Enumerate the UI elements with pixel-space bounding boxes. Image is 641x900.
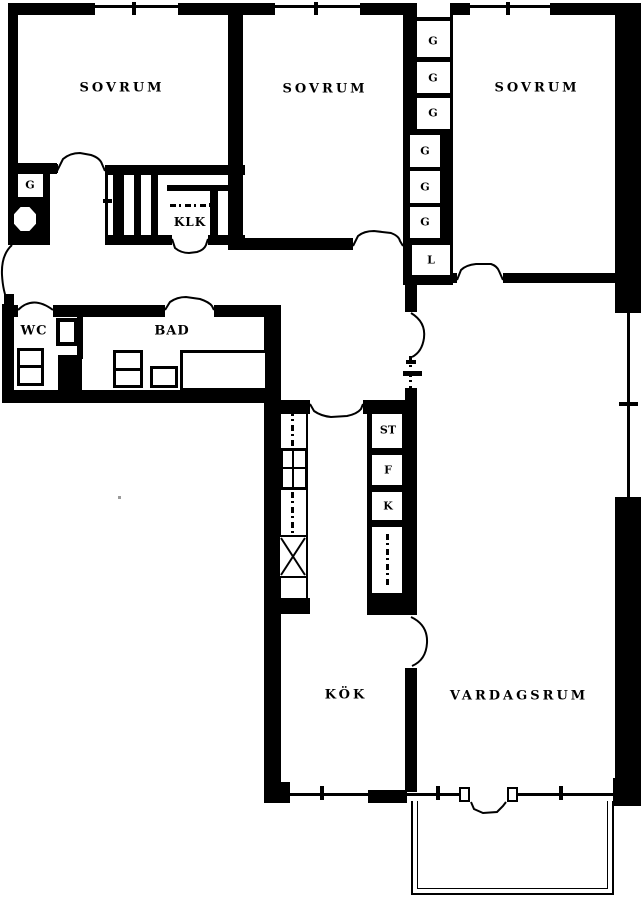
room-label-livingroom: VARDAGSRUM [450, 690, 588, 703]
door-arc-wc [18, 303, 53, 311]
floor-plan: SOVRUM SOVRUM SOVRUM KÖK VARDAGSRUM WC B… [0, 0, 641, 900]
door-leaf-balcony [471, 802, 506, 813]
door-arc-hall-livingroom [411, 313, 424, 357]
door-arc-bedroom3 [457, 264, 503, 280]
door-arc-bad [165, 297, 214, 310]
label-hall-wardrobe: G [25, 180, 34, 191]
stove-cross [281, 538, 305, 575]
door-arcs-layer [0, 0, 641, 900]
room-label-kitchen: KÖK [325, 689, 368, 702]
room-label-klk: KLK [174, 216, 206, 228]
label-fridge: K [383, 501, 393, 512]
label-cleaning-closet: ST [380, 425, 396, 436]
label-wardrobe-slot: G [420, 182, 429, 193]
label-freezer: F [384, 465, 392, 476]
room-label-bathroom: BAD [154, 325, 189, 338]
door-arc-klk [172, 239, 208, 253]
door-arc-entry [2, 245, 12, 302]
door-arc-kitchen [310, 404, 363, 417]
label-wardrobe-slot: G [420, 217, 429, 228]
label-wardrobe-slot: G [420, 146, 429, 157]
label-wardrobe-slot: G [428, 36, 437, 47]
room-label-bedroom3: SOVRUM [494, 82, 579, 95]
label-wardrobe-slot: G [428, 108, 437, 119]
door-arc-kitchen-livingroom [411, 617, 427, 666]
label-linen-closet: L [427, 255, 435, 266]
room-label-bedroom2: SOVRUM [282, 83, 367, 96]
door-arc-bedroom2 [353, 231, 403, 246]
room-label-wc: WC [21, 325, 48, 338]
room-label-bedroom1: SOVRUM [79, 82, 164, 95]
label-wardrobe-slot: G [428, 73, 437, 84]
door-arc-bedroom1 [57, 153, 105, 171]
